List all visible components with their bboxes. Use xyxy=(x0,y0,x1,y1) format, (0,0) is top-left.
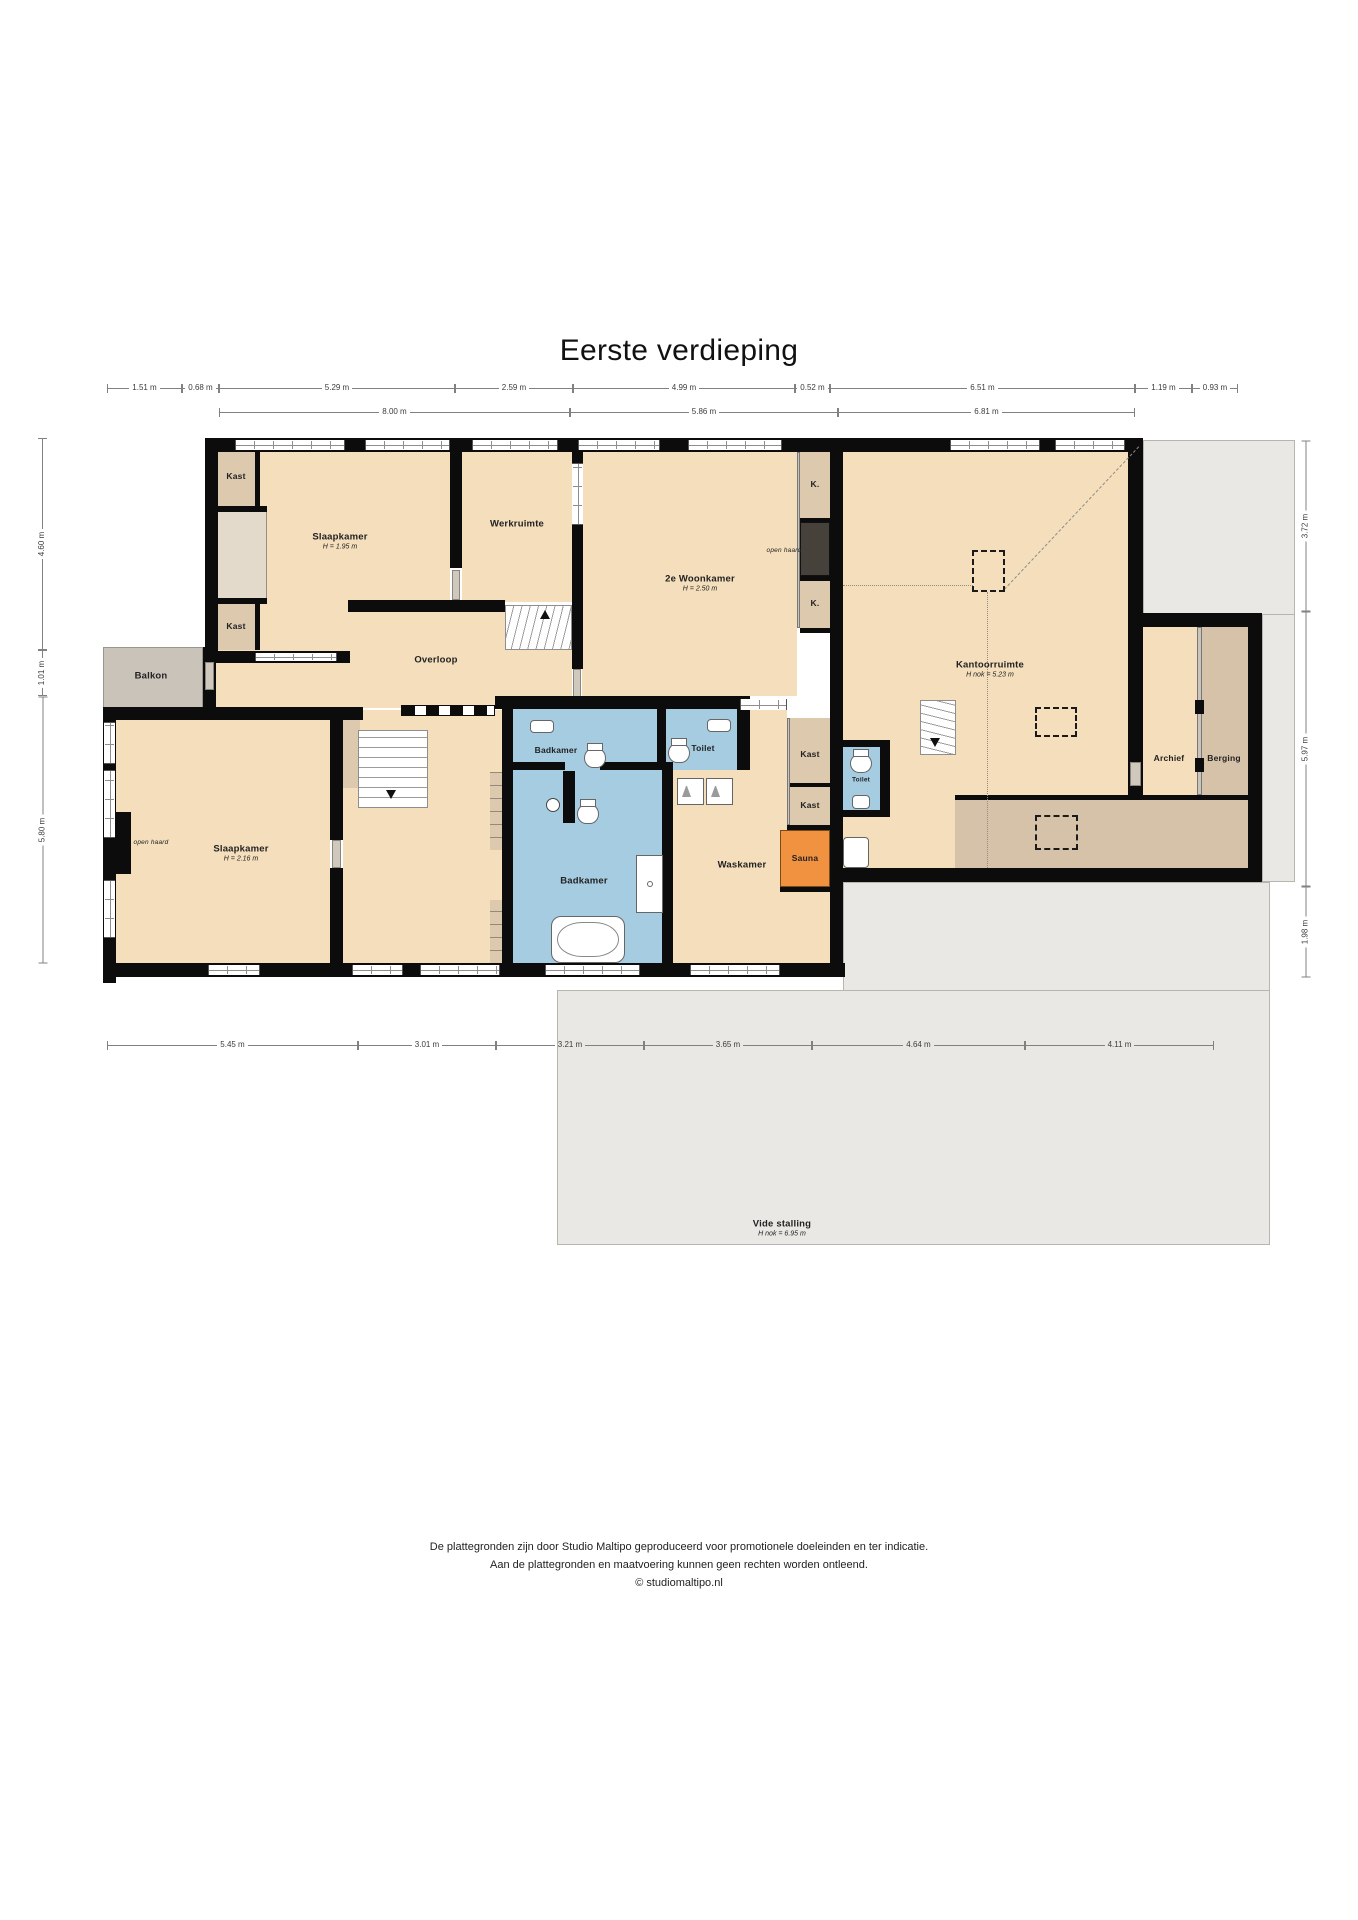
dimension-top_row_2-6-81-m: 6.81 m xyxy=(838,406,1135,418)
dimension-left-4-60-m: 4.60 m xyxy=(36,438,48,650)
dimension-top_row_1-0-52-m: 0.52 m xyxy=(795,382,830,394)
room-label-toilet-1: Toilet xyxy=(691,743,714,753)
vide-dashed-edge xyxy=(401,705,495,716)
window-waskamer-north xyxy=(740,699,787,710)
room-berging xyxy=(1202,627,1248,795)
staircase-overloop xyxy=(505,605,572,650)
roof-ridge-line-vertical xyxy=(987,592,988,868)
dimension-right-3-72-m: 3.72 m xyxy=(1299,440,1311,611)
wall-northeast-horizontal xyxy=(1128,613,1262,627)
window-top-4 xyxy=(578,440,660,450)
dimension-top_row_2-5-86-m: 5.86 m xyxy=(570,406,838,418)
room-label-open-haard-1: open haard xyxy=(766,547,802,555)
wall-badkamer-west xyxy=(502,709,513,963)
wall-lower-north xyxy=(103,707,363,720)
wall-kast1-east xyxy=(255,452,260,512)
door-slaapkamer-1 xyxy=(452,570,460,600)
toilet-badkamer-1 xyxy=(584,748,606,768)
window-top-3 xyxy=(472,440,558,450)
room-label-werkruimte: Werkruimte xyxy=(490,519,544,530)
chimney-block xyxy=(678,698,718,709)
room-label-sauna: Sauna xyxy=(792,853,819,863)
room-label-closet-k-1: K. xyxy=(811,479,820,489)
room-label-balkon: Balkon xyxy=(135,671,168,682)
room-label-kast-3: Kast xyxy=(800,749,819,759)
room-slaapkamer-2 xyxy=(116,710,330,963)
dimension-top_row_1-6-51-m: 6.51 m xyxy=(830,382,1135,394)
dimension-bottom-4-64-m: 4.64 m xyxy=(812,1039,1025,1051)
wall-kast2-north xyxy=(218,598,267,604)
dimension-bottom-4-11-m: 4.11 m xyxy=(1025,1039,1214,1051)
room-label-archief: Archief xyxy=(1154,753,1185,763)
room-overloop-corridor xyxy=(216,663,350,708)
window-bottom-4 xyxy=(545,965,640,975)
room-label-kantoorruimte: KantoorruimteH nok = 5.23 m xyxy=(956,660,1024,679)
outside-area-top-right xyxy=(1143,440,1295,615)
dimension-top_row_1-2-59-m: 2.59 m xyxy=(455,382,573,394)
room-label-badkamer-1: Badkamer xyxy=(535,745,578,755)
room-label-overloop: Overloop xyxy=(414,655,457,666)
room-label-toilet-2: Toilet xyxy=(852,777,870,784)
window-left-2 xyxy=(104,770,115,838)
room-label-kast-2: Kast xyxy=(226,621,245,631)
wall-kast1-south xyxy=(218,506,267,512)
window-top-6 xyxy=(950,440,1040,450)
wall-slaapkamer2-east-a xyxy=(330,710,343,840)
vide-stalling-area xyxy=(557,990,1270,1245)
footer-line-3: © studiomaltipo.nl xyxy=(0,1574,1358,1592)
toilet-toilet-1 xyxy=(668,743,690,763)
dimension-right-5-97-m: 5.97 m xyxy=(1299,611,1311,886)
window-left-3 xyxy=(104,880,115,938)
bathtub xyxy=(551,916,625,963)
dimension-top_row_1-1-51-m: 1.51 m xyxy=(107,382,182,394)
wall-toilet2-east xyxy=(880,740,890,817)
platform-strip xyxy=(955,800,1248,868)
footer-line-1: De plattegronden zijn door Studio Maltip… xyxy=(0,1538,1358,1556)
wall-werkruimte-east-top xyxy=(572,448,583,463)
skylight-2 xyxy=(1035,707,1077,737)
room-label-berging: Berging xyxy=(1207,753,1241,763)
room-label-badkamer-2: Badkamer xyxy=(560,876,608,887)
dimension-top_row_1-5-29-m: 5.29 m xyxy=(219,382,455,394)
toilet-toilet-2 xyxy=(850,754,872,773)
dimension-right-1-98-m: 1.98 m xyxy=(1299,886,1311,977)
room-label-vide-stalling: Vide stallingH nok = 6.95 m xyxy=(753,1219,811,1238)
room-label-kast-4: Kast xyxy=(800,800,819,810)
door-balkon xyxy=(205,662,214,690)
wardrobe-strip-1 xyxy=(218,512,267,600)
wall-berging-east xyxy=(1248,613,1262,882)
dimension-top_row_1-0-68-m: 0.68 m xyxy=(182,382,219,394)
room-archief xyxy=(1143,627,1197,795)
dimension-bottom-3-65-m: 3.65 m xyxy=(644,1039,812,1051)
wall-left-upper xyxy=(205,452,218,663)
vide-stalling-area-upper xyxy=(843,882,1270,991)
dimension-top_row_1-0-93-m: 0.93 m xyxy=(1192,382,1238,394)
sink-badkamer-2 xyxy=(546,798,560,812)
wall-toilet1-east xyxy=(737,709,750,770)
window-slaapkamer1-south xyxy=(255,653,337,661)
dimension-bottom-5-45-m: 5.45 m xyxy=(107,1039,358,1051)
wall-badkamer2-east xyxy=(662,770,673,963)
window-werkruimte-interior xyxy=(572,463,583,525)
wall-toilet2-north xyxy=(843,740,880,747)
stair-down-arrow-icon xyxy=(386,790,396,799)
dimension-top_row_1-1-19-m: 1.19 m xyxy=(1135,382,1192,394)
footer-line-2: Aan de plattegronden en maatvoering kunn… xyxy=(0,1556,1358,1574)
sink-toilet-1 xyxy=(707,719,731,732)
room-label-slaapkamer-2: SlaapkamerH = 2.16 m xyxy=(213,844,268,863)
wall-werkruimte-east xyxy=(572,525,583,612)
room-lobby-strip xyxy=(750,709,787,770)
open-haard-block-1 xyxy=(800,522,830,576)
wall-bottom-right xyxy=(843,868,1262,882)
wall-badkamer2-partition xyxy=(563,771,575,823)
wall-k1-haard-sep xyxy=(800,518,830,522)
window-bottom-2 xyxy=(352,965,403,975)
sink-badkamer-1 xyxy=(530,720,554,733)
washing-machine-1 xyxy=(677,778,704,805)
closet-front-k xyxy=(797,452,800,628)
wall-spine xyxy=(830,438,843,977)
wall-overloop-east xyxy=(572,612,583,669)
wall-k2-south xyxy=(800,628,830,633)
sink-kantoor-lobby xyxy=(843,837,869,868)
dimension-left-5-80-m: 5.80 m xyxy=(36,696,48,963)
window-bottom-1 xyxy=(208,965,260,975)
window-bottom-3 xyxy=(420,965,500,975)
floor-plan-canvas: Eerste verdieping xyxy=(0,0,1358,1920)
window-bottom-5 xyxy=(690,965,780,975)
door-slaapkamer-2 xyxy=(332,840,341,868)
window-left-1 xyxy=(104,722,115,764)
footer-disclaimer: De plattegronden zijn door Studio Maltip… xyxy=(0,1538,1358,1592)
door-archief xyxy=(1130,762,1141,786)
toilet-badkamer-2 xyxy=(577,804,599,824)
room-label-kast-1: Kast xyxy=(226,471,245,481)
outside-area-right-strip xyxy=(1262,614,1295,882)
window-top-2 xyxy=(365,440,450,450)
wall-overloop-north xyxy=(348,600,505,612)
sliding-door-handle-1 xyxy=(1195,700,1204,714)
dimension-bottom-3-01-m: 3.01 m xyxy=(358,1039,496,1051)
room-label-waskamer: Waskamer xyxy=(718,860,767,871)
room-label-closet-k-2: K. xyxy=(811,598,820,608)
room-label-2e-woonkamer: 2e WoonkamerH = 2.50 m xyxy=(665,574,735,593)
wall-kast2-east xyxy=(255,604,260,650)
wall-slaapkamer1-werkruimte xyxy=(450,448,462,568)
wall-toilet2-south xyxy=(843,810,890,817)
wall-badkamer1-toilet1 xyxy=(657,709,666,770)
wall-badkamer-divider-a xyxy=(513,762,565,770)
wall-kast3-south xyxy=(787,783,830,787)
wall-kast4-south xyxy=(787,825,830,830)
window-top-1 xyxy=(235,440,345,450)
shower-tray xyxy=(636,855,663,913)
room-label-open-haard-2: open haard xyxy=(133,839,169,847)
wall-kantoor-east-upper xyxy=(1128,438,1143,627)
dimension-top_row_2-8-00-m: 8.00 m xyxy=(219,406,570,418)
wall-slaapkamer2-east-b xyxy=(330,868,343,963)
dimension-bottom-3-21-m: 3.21 m xyxy=(496,1039,644,1051)
window-top-7 xyxy=(1055,440,1125,450)
closet-front-kast34 xyxy=(787,718,790,825)
page-title: Eerste verdieping xyxy=(0,334,1358,368)
skylight-3 xyxy=(1035,815,1078,850)
stair-up-arrow-icon xyxy=(540,610,550,619)
room-label-slaapkamer-1: SlaapkamerH = 1.95 m xyxy=(312,532,367,551)
dimension-top_row_1-4-99-m: 4.99 m xyxy=(573,382,795,394)
skylight-1 xyxy=(972,550,1005,592)
sink-toilet-2 xyxy=(852,795,870,809)
stair-down-arrow-icon-2 xyxy=(930,738,940,747)
wall-haard-k2-sep xyxy=(800,576,830,581)
wall-platform-north xyxy=(955,795,1262,800)
dimension-left-1-01-m: 1.01 m xyxy=(36,650,48,696)
sliding-door-handle-2 xyxy=(1195,758,1204,772)
window-top-5 xyxy=(688,440,782,450)
wall-sauna-south xyxy=(780,887,830,892)
roof-ridge-line-horizontal xyxy=(843,585,973,586)
door-2e-woonkamer xyxy=(573,669,581,699)
washing-machine-2 xyxy=(706,778,733,805)
